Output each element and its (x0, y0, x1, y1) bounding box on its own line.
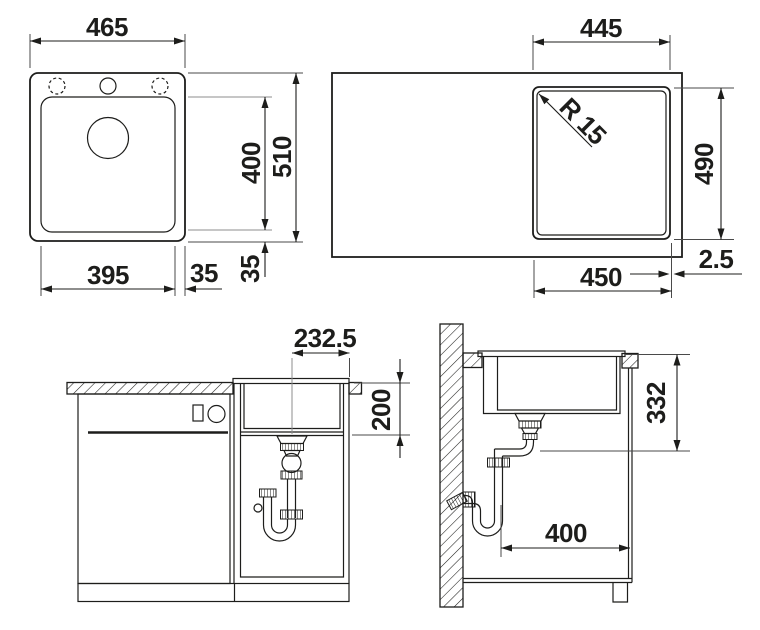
sink-rim-front (233, 379, 349, 384)
worktop-outline (332, 73, 682, 257)
control-knob (208, 406, 225, 423)
left-cabinet (78, 394, 230, 584)
dim-corner-radius: R 15 (539, 92, 612, 151)
view-cabinet-front: 232.5 200 (67, 323, 410, 602)
drain-hole (88, 118, 129, 159)
technical-drawing-page: 465 400 510 35 (0, 0, 760, 630)
dim-outlet-distance: 400 (501, 505, 630, 557)
dim-label-395: 395 (87, 260, 129, 290)
dim-label-2-5: 2.5 (699, 244, 734, 274)
dim-bowl-installed-depth: 200 (352, 359, 410, 458)
bowl-inner-side (498, 357, 617, 411)
dim-label-35-side: 35 (190, 258, 218, 288)
dim-outlet-height: 332 (540, 355, 690, 452)
dim-cutout-width: 445 (533, 13, 670, 70)
sink-outline (30, 73, 185, 241)
worktop-front-right (349, 383, 362, 395)
dim-label-445: 445 (580, 13, 622, 43)
plinth-side (613, 583, 628, 603)
view-cutout-plan: R 15 445 490 450 (332, 13, 742, 298)
dim-label-232-5: 232.5 (294, 323, 357, 353)
dim-label-332: 332 (641, 382, 671, 424)
bowl-outer-side (484, 357, 621, 414)
control-switch (193, 405, 203, 421)
dim-label-400: 400 (236, 142, 266, 184)
view-sink-top: 465 400 510 35 (30, 12, 303, 296)
wall-section (440, 324, 463, 607)
tap-hole-right-optional (152, 78, 168, 94)
worktop-side-left (463, 353, 482, 368)
worktop-front-left (67, 383, 233, 395)
plinth-front (78, 584, 349, 602)
dim-bowl-outer-width: 450 2.5 (534, 243, 742, 298)
dim-label-510: 510 (267, 136, 297, 178)
view-cabinet-side: 332 400 (440, 324, 690, 607)
tap-hole-center (100, 78, 116, 94)
cutout-outline (533, 87, 670, 239)
dim-cutout-depth: 490 (674, 88, 734, 240)
dim-label-200: 200 (366, 389, 396, 431)
dim-label-35-front: 35 (235, 255, 265, 283)
dim-label-400-side: 400 (545, 518, 587, 548)
dim-label-r15: R 15 (554, 92, 613, 151)
dim-overall-width: 465 (30, 12, 185, 68)
tap-hole-left-optional (49, 78, 65, 94)
dim-label-490: 490 (689, 143, 719, 185)
trap-front (254, 436, 307, 541)
dim-label-465: 465 (86, 12, 128, 42)
sink-rim-side (478, 351, 625, 357)
dim-label-450: 450 (580, 262, 622, 292)
sink-dimension-drawing: 465 400 510 35 (0, 0, 760, 630)
dim-bowl-width: 395 35 (41, 246, 222, 296)
dim-overall-depth: 400 510 35 (188, 73, 303, 283)
